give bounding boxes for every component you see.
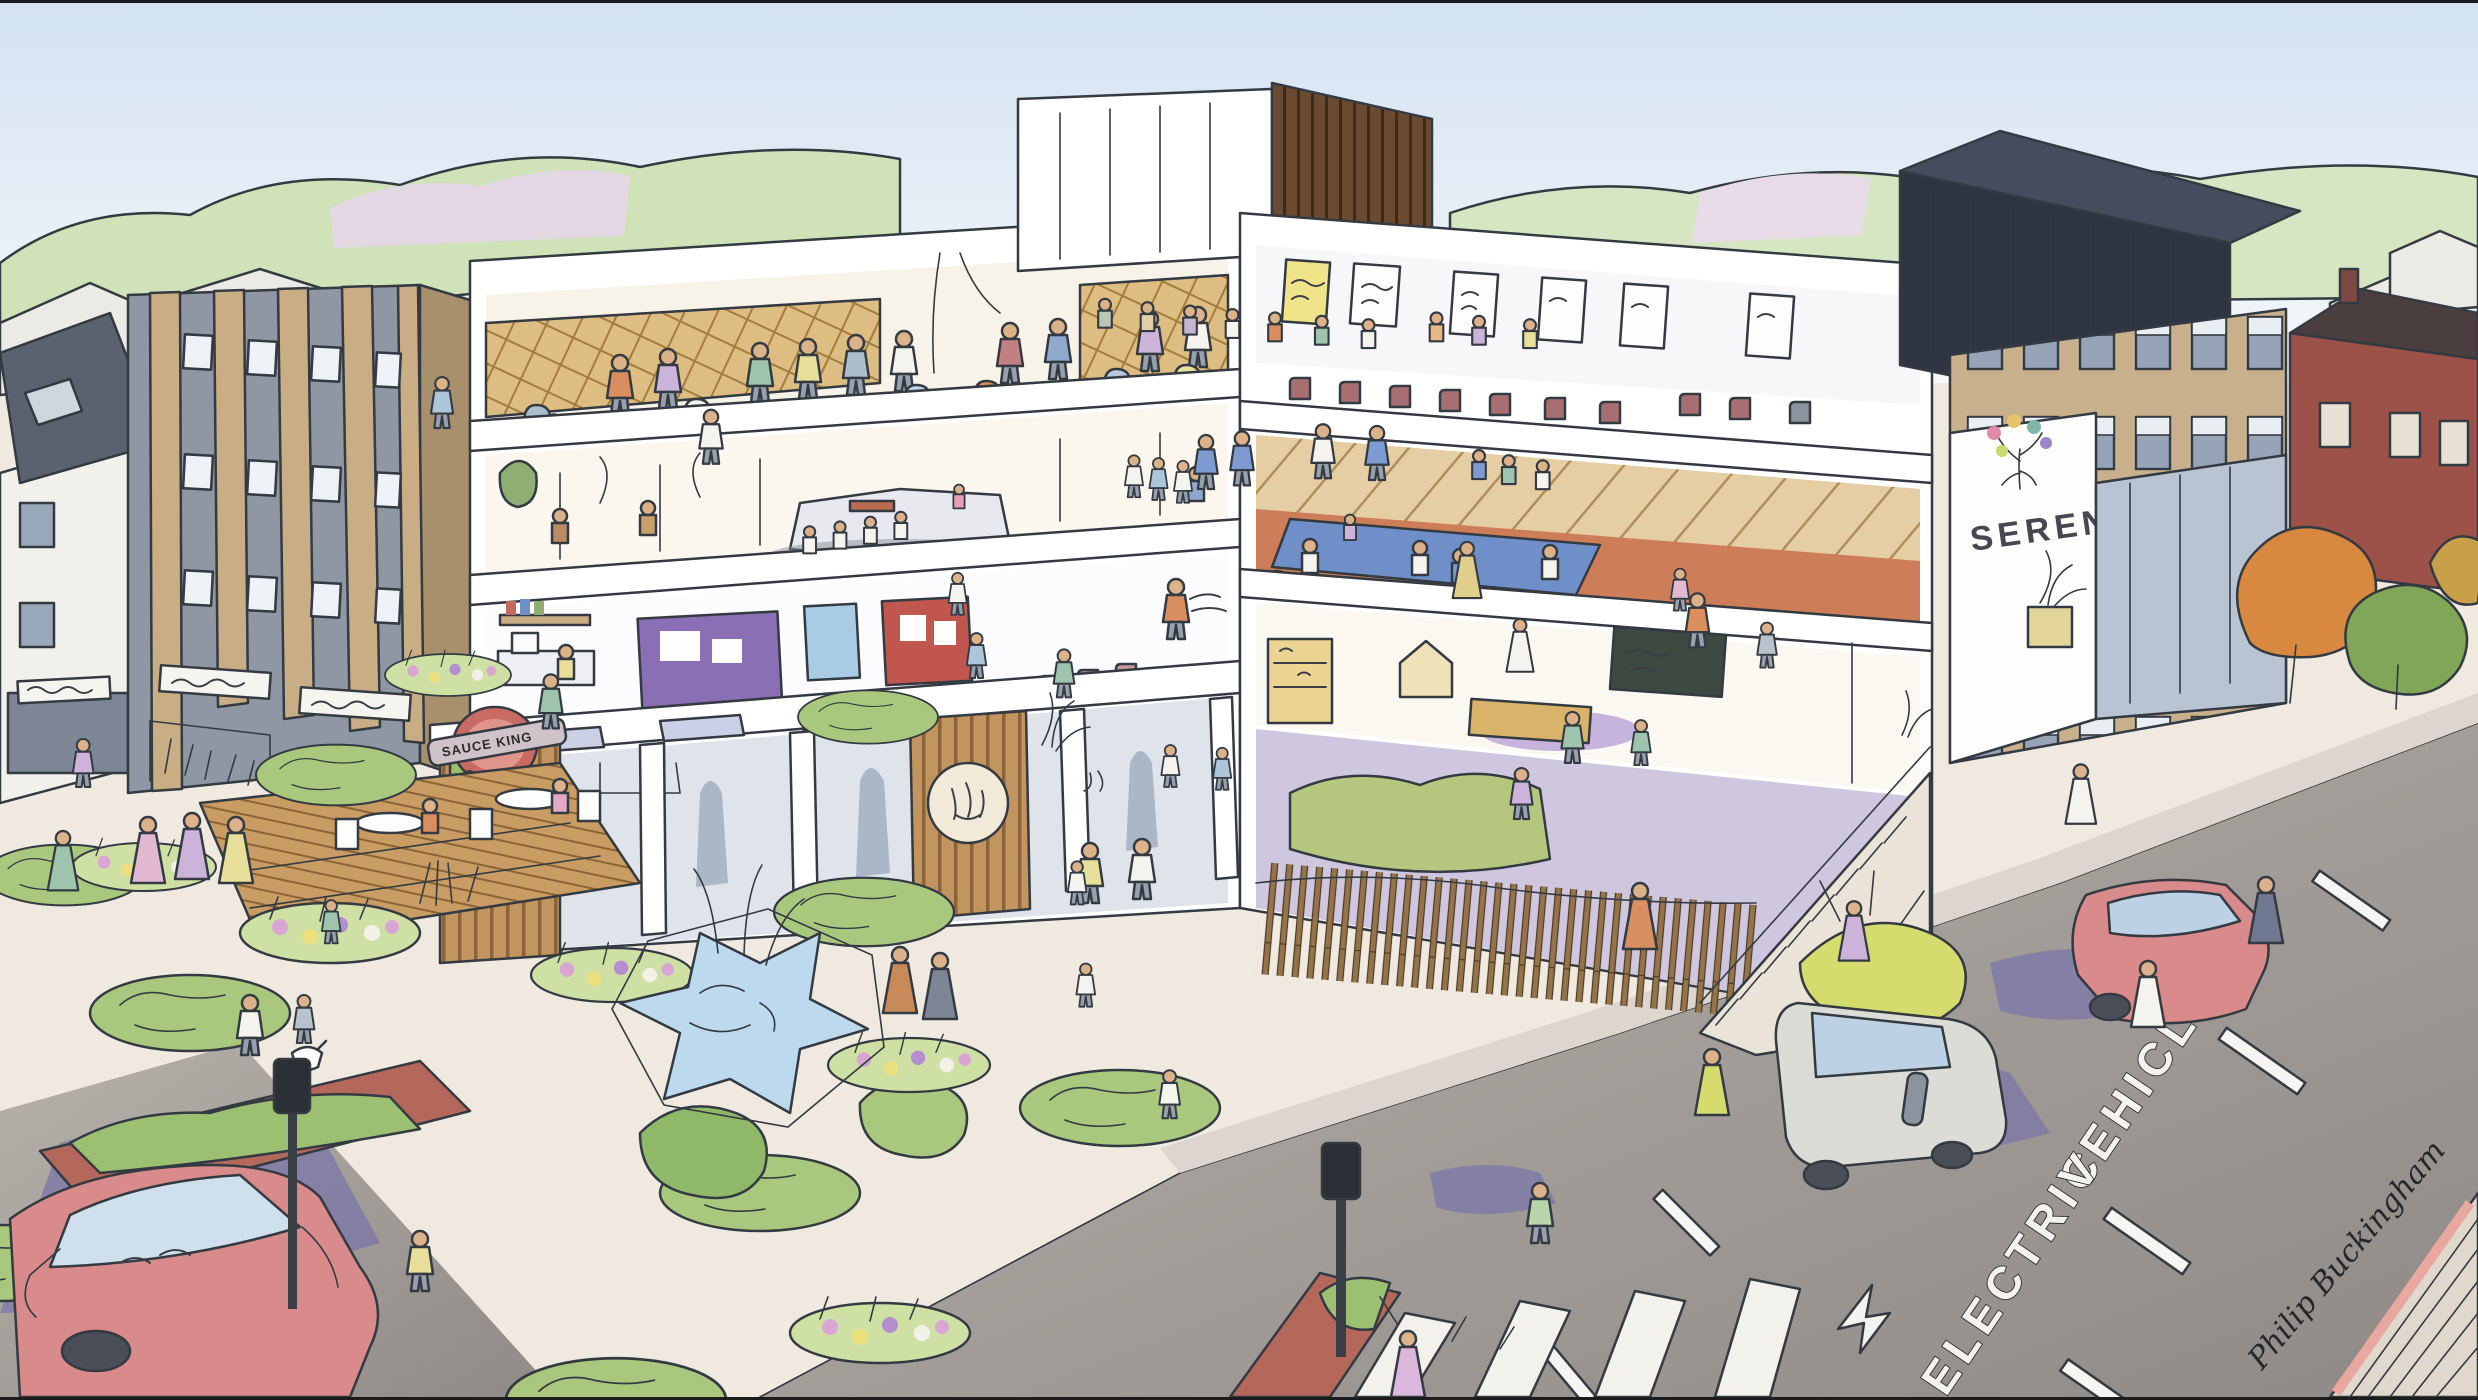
planter-pot — [2028, 607, 2072, 647]
wheel — [2090, 994, 2130, 1020]
wheel — [1932, 1142, 1972, 1168]
blue-board — [804, 604, 860, 681]
hi-vis-worker — [407, 1231, 433, 1291]
red-car-foreground — [10, 1165, 378, 1397]
instructor — [1163, 579, 1189, 639]
signal-head — [1322, 1143, 1360, 1199]
toy-shelf — [1268, 639, 1332, 723]
arabic-calligraphy-roundel-icon — [928, 763, 1008, 843]
cafe-guest — [422, 799, 438, 833]
dog-walker — [237, 995, 263, 1055]
shopfront — [8, 693, 128, 773]
signal-head — [274, 1059, 310, 1113]
parent-walking — [1527, 1183, 1553, 1243]
child-walking — [1068, 861, 1087, 904]
wheel — [1804, 1161, 1848, 1189]
greeting-person — [1129, 839, 1155, 899]
serene-entrance-wall — [1950, 413, 2096, 763]
left-office-building — [128, 285, 480, 793]
red-hatchback — [2073, 880, 2269, 1023]
cafe-chair — [470, 809, 492, 839]
concept-illustration: ELECTRIC VEHICLES — [0, 3, 2478, 1397]
cafe-chair — [578, 791, 600, 821]
wheel — [62, 1331, 130, 1371]
kitchen-cook — [1686, 593, 1709, 647]
cafe-guest — [552, 779, 568, 813]
illustration-canvas: ELECTRIC VEHICLES — [0, 0, 2478, 1400]
serene-building: SERENE — [1950, 309, 2286, 763]
potted-palm — [500, 461, 537, 507]
cafe-chair — [336, 819, 358, 849]
blackboard — [1610, 627, 1726, 697]
shop-signboard — [17, 677, 110, 704]
chimney — [2340, 269, 2358, 303]
cafe-table — [356, 813, 424, 833]
play-lawn — [1290, 774, 1550, 872]
monitor — [512, 633, 538, 653]
bookshelf — [500, 615, 590, 625]
